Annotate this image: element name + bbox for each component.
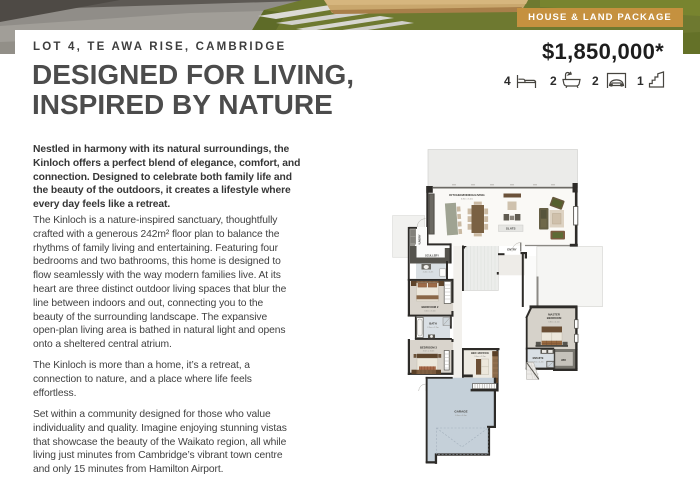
svg-text:BED 4/OFFICE: BED 4/OFFICE [471, 351, 489, 355]
svg-text:3.0m x 3.2m: 3.0m x 3.2m [474, 356, 486, 358]
svg-text:WIR: WIR [561, 359, 566, 362]
svg-text:6.0m x 6.5m: 6.0m x 6.5m [455, 415, 467, 417]
svg-text:2.4m x 1.2m: 2.4m x 1.2m [423, 272, 434, 274]
svg-text:BEDROOM: BEDROOM [547, 316, 562, 320]
svg-text:6.8m x 5.4m: 6.8m x 5.4m [461, 199, 473, 201]
svg-text:2.9m x 2.2m: 2.9m x 2.2m [427, 327, 439, 329]
svg-text:ENSUITE: ENSUITE [533, 357, 544, 360]
svg-text:3.6m x 3.0m: 3.6m x 3.0m [423, 351, 435, 353]
svg-text:BEDROOM 3: BEDROOM 3 [420, 345, 437, 349]
svg-text:3.8m x 4.1m: 3.8m x 4.1m [548, 321, 560, 323]
svg-text:BEDROOM 2: BEDROOM 2 [422, 305, 439, 309]
svg-text:3.6m x 3.2m: 3.6m x 3.2m [424, 311, 436, 313]
svg-text:BATH: BATH [429, 321, 437, 325]
svg-text:SLATS: SLATS [506, 227, 516, 231]
svg-text:SCULLERY: SCULLERY [425, 254, 439, 258]
svg-text:2.6m x 2.4m: 2.6m x 2.4m [532, 361, 543, 363]
svg-text:KITCHEN/DINING/LIVING: KITCHEN/DINING/LIVING [449, 193, 485, 197]
svg-text:GARAGE: GARAGE [454, 409, 467, 413]
